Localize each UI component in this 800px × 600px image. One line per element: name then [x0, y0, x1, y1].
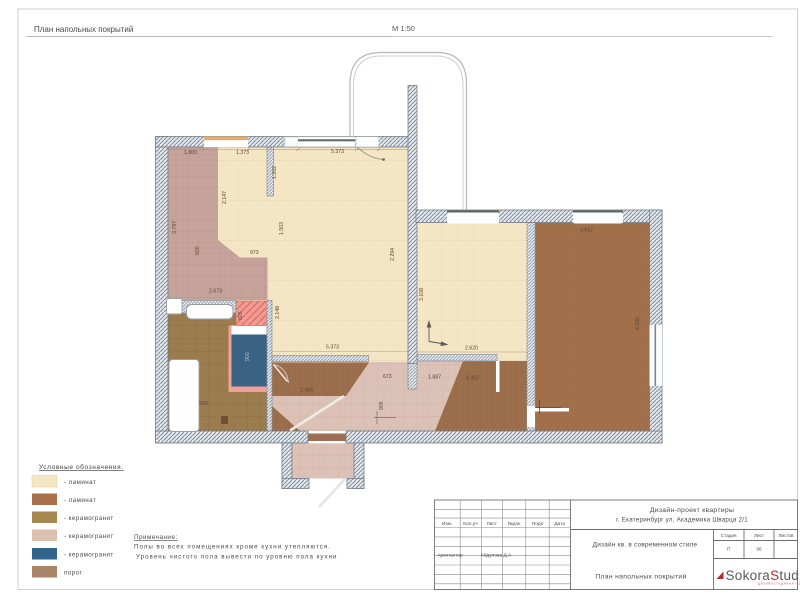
svg-text:Листов: Листов — [779, 533, 794, 538]
svg-text:План напольных покрытий: План напольных покрытий — [34, 25, 133, 34]
svg-text:- керамогранит: - керамогранит — [64, 533, 114, 540]
svg-text:1.503: 1.503 — [279, 222, 285, 235]
svg-text:Дизайн-проект квартиры: Дизайн-проект квартиры — [650, 506, 734, 514]
svg-text:Дата: Дата — [554, 521, 565, 527]
svg-text:Условные обозначения:: Условные обозначения: — [39, 463, 124, 471]
svg-text:805: 805 — [238, 311, 244, 320]
svg-text:Полы во всех помещениях кроме: Полы во всех помещениях кроме кухни утеп… — [134, 544, 331, 551]
svg-text:Подп: Подп — [532, 521, 544, 527]
svg-text:- керамогранит: - керамогранит — [64, 515, 114, 522]
svg-text:д и з а й н с т у д и я и: д и з а й н с т у д и я и н т е р ь е р … — [758, 582, 800, 586]
svg-text:- керамогранит: - керамогранит — [64, 552, 114, 559]
svg-text:905: 905 — [379, 401, 385, 410]
svg-text:2.294: 2.294 — [390, 248, 396, 261]
svg-text:М 1:50: М 1:50 — [392, 24, 415, 33]
svg-text:4.612: 4.612 — [580, 228, 593, 234]
svg-text:2.148: 2.148 — [275, 306, 281, 319]
svg-text:1.465: 1.465 — [300, 388, 313, 394]
svg-text:Лист: Лист — [487, 521, 498, 527]
svg-text:г. Екатеринбург ул. Академика: г. Екатеринбург ул. Академика Шварца 2/1 — [616, 517, 748, 524]
svg-text:1.373: 1.373 — [236, 150, 249, 156]
svg-text:3.797: 3.797 — [172, 221, 178, 234]
svg-text:4.180: 4.180 — [635, 317, 641, 330]
svg-text:600: 600 — [195, 246, 201, 255]
svg-text:1.262: 1.262 — [272, 166, 278, 179]
svg-text:- ламинат: - ламинат — [64, 479, 96, 486]
svg-text:06: 06 — [756, 547, 762, 552]
svg-text:Изм.: Изм. — [442, 521, 452, 527]
svg-text:5.373: 5.373 — [331, 149, 344, 155]
svg-text:1.362: 1.362 — [466, 376, 479, 382]
svg-text:Примечание:: Примечание: — [134, 534, 178, 541]
svg-text:Абдулова Д.А: Абдулова Д.А — [481, 553, 512, 559]
svg-text:2.620: 2.620 — [465, 346, 478, 352]
svg-text:900: 900 — [245, 352, 251, 361]
svg-text:№док: №док — [508, 521, 522, 527]
svg-text:- ламинат: - ламинат — [64, 497, 96, 504]
svg-text:1.887: 1.887 — [428, 375, 441, 381]
svg-text:порог: порог — [64, 570, 82, 577]
svg-text:673: 673 — [383, 374, 392, 380]
svg-text:Архитектор: Архитектор — [437, 553, 463, 559]
svg-text:П: П — [727, 547, 730, 552]
svg-text:973: 973 — [250, 250, 259, 256]
svg-text:1.800: 1.800 — [184, 150, 197, 156]
svg-text:План напольных покрытий: План напольных покрытий — [595, 573, 686, 581]
svg-text:5.373: 5.373 — [326, 345, 339, 351]
svg-text:Кол.уч: Кол.уч — [463, 521, 478, 527]
svg-text:Стадия: Стадия — [721, 533, 737, 538]
svg-text:2.673: 2.673 — [209, 289, 222, 295]
svg-text:3.108: 3.108 — [419, 288, 425, 301]
svg-text:Дизайн кв. в современном стиле: Дизайн кв. в современном стиле — [593, 541, 698, 549]
svg-text:2.147: 2.147 — [222, 191, 228, 204]
svg-text:900: 900 — [199, 401, 208, 407]
svg-text:Уровень чистого пола вывести п: Уровень чистого пола вывести по уровню п… — [136, 554, 337, 561]
svg-text:Лист: Лист — [754, 533, 765, 538]
